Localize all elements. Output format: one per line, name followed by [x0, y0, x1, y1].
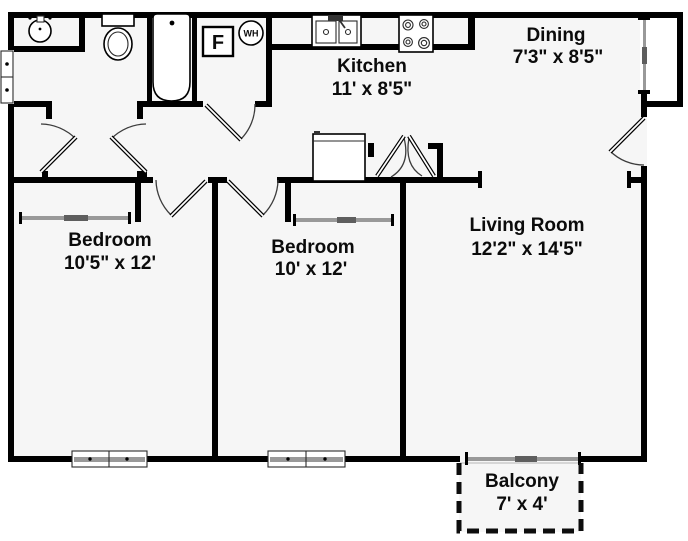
bedroom-middle-size: 10' x 12' [275, 259, 347, 280]
refrigerator [313, 131, 365, 181]
kitchen-name: Kitchen [337, 56, 407, 77]
furnace-box: F [203, 27, 233, 56]
bedroom-left-window [72, 451, 147, 467]
water-heater: WH [239, 21, 263, 45]
furnace-label: F [212, 32, 224, 54]
bedroom-left-size: 10'5" x 12' [64, 253, 156, 274]
bedroom-middle-name: Bedroom [271, 237, 354, 258]
floor-plan-drawing: F WH [0, 0, 688, 541]
dining-size: 7'3" x 8'5" [513, 47, 603, 68]
bedroom-left-name: Bedroom [68, 230, 151, 251]
water-heater-label: WH [244, 29, 259, 39]
left-wall-window [0, 50, 14, 104]
living-room-name: Living Room [469, 215, 584, 236]
room-label-bedroom-middle: Bedroom 10' x 12' [271, 237, 354, 280]
kitchen-size: 11' x 8'5" [332, 79, 412, 100]
stove [399, 15, 433, 52]
dining-name: Dining [526, 25, 585, 46]
bathtub [153, 14, 190, 101]
kitchen-sink [312, 15, 361, 47]
balcony-name: Balcony [485, 471, 559, 492]
balcony-size: 7' x 4' [496, 494, 547, 515]
living-room-size: 12'2" x 14'5" [471, 239, 583, 260]
toilet [102, 14, 134, 60]
floor-plan: F WH [0, 0, 688, 541]
bedroom-middle-window [268, 451, 345, 467]
